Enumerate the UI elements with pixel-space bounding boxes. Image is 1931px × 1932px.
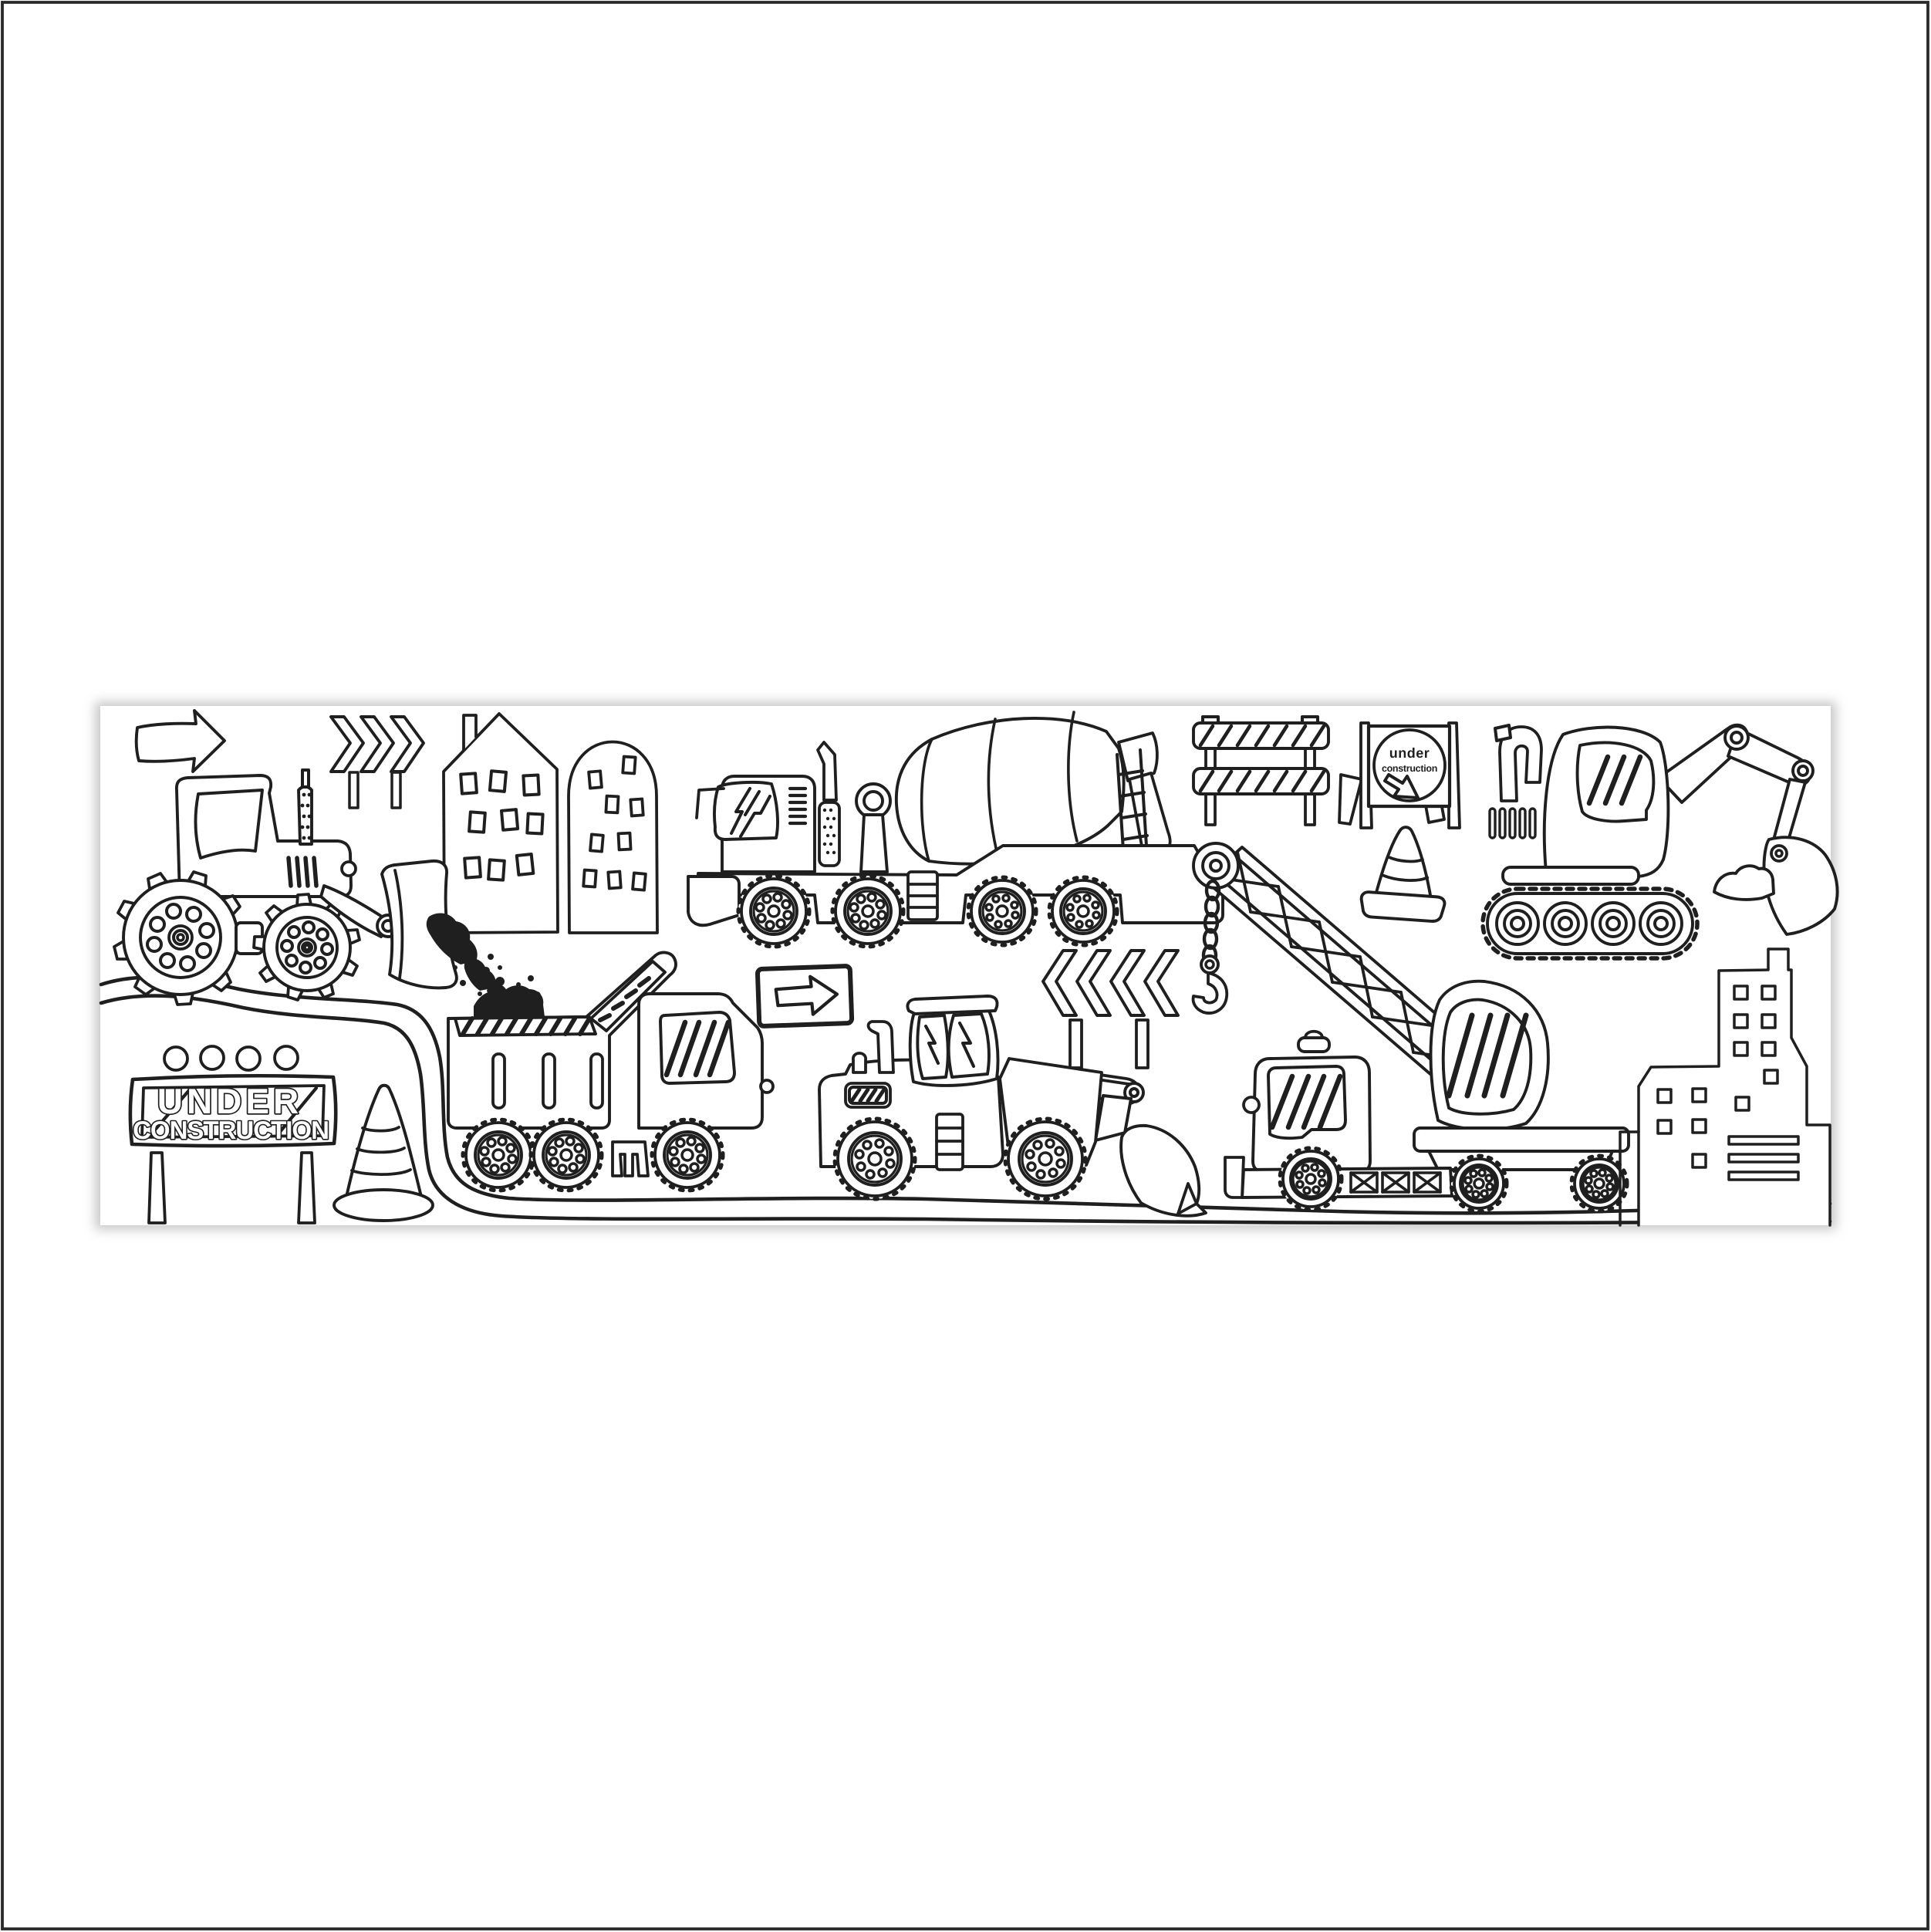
- svg-text:under: under: [1389, 745, 1430, 761]
- svg-text:construction: construction: [1382, 763, 1437, 774]
- svg-text:CONSTRUCTION: CONSTRUCTION: [133, 1116, 329, 1144]
